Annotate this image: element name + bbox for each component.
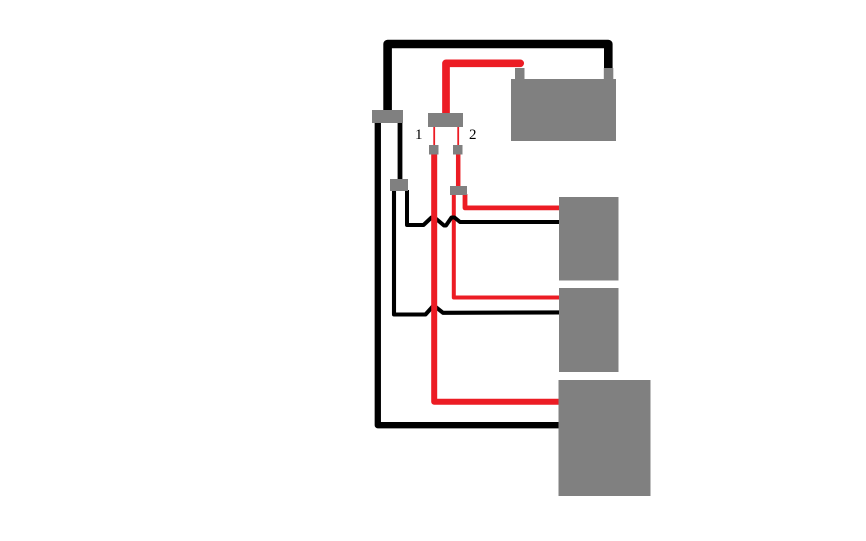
svg-text:2: 2 — [469, 127, 477, 143]
svg-text:1: 1 — [415, 127, 423, 143]
